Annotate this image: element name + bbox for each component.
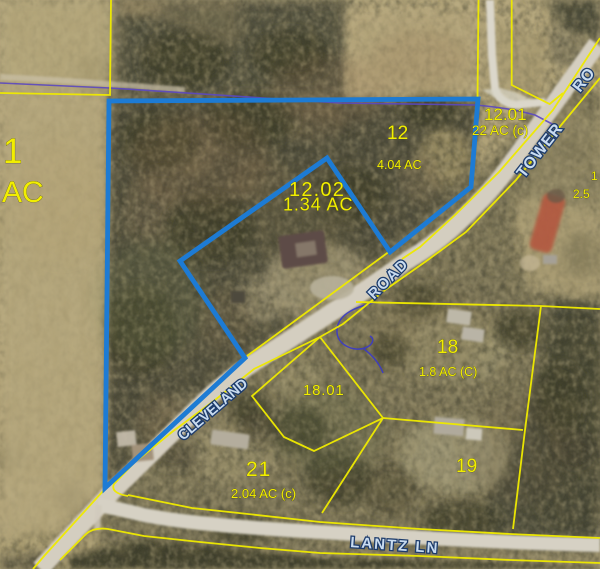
svg-text:18.01: 18.01 — [303, 382, 345, 399]
svg-text:4.04 AC: 4.04 AC — [377, 158, 421, 172]
svg-text:21: 21 — [246, 458, 271, 481]
svg-text:1: 1 — [3, 132, 22, 171]
svg-text:1.34 AC: 1.34 AC — [283, 195, 353, 215]
svg-text:12: 12 — [387, 123, 408, 144]
svg-text:1.8 AC (C): 1.8 AC (C) — [419, 365, 477, 379]
svg-text:1: 1 — [591, 169, 598, 183]
svg-text:22 AC (c): 22 AC (c) — [472, 123, 528, 138]
svg-text:19: 19 — [456, 456, 477, 477]
svg-text:AC: AC — [2, 176, 44, 209]
svg-text:18: 18 — [437, 337, 458, 358]
svg-text:12.01: 12.01 — [484, 105, 527, 124]
svg-text:2.04 AC (c): 2.04 AC (c) — [231, 486, 296, 501]
svg-text:2.5: 2.5 — [573, 187, 590, 201]
